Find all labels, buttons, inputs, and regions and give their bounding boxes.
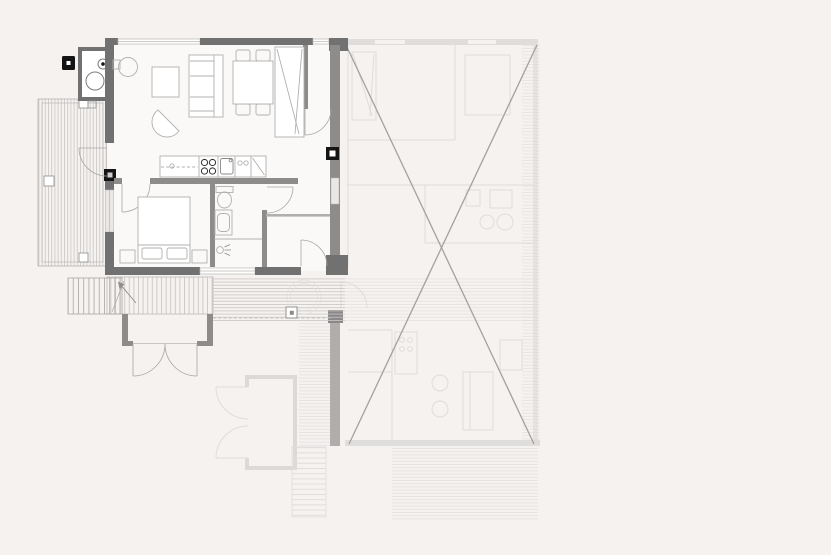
ghost-window bbox=[375, 40, 405, 44]
ghost-west-wall bbox=[330, 323, 340, 446]
column-post-icon bbox=[79, 253, 88, 262]
west-deck bbox=[38, 99, 107, 266]
kitchen-counter-icon bbox=[160, 156, 266, 177]
floor-plan-drawing bbox=[0, 0, 831, 555]
column-post-icon bbox=[44, 176, 54, 186]
south-walkway-hatch bbox=[213, 277, 345, 322]
corner-post bbox=[326, 255, 348, 275]
ghost-stairs-icon bbox=[292, 447, 326, 517]
chimney-flue bbox=[67, 61, 71, 65]
south-deck-boards-hatch bbox=[107, 277, 213, 314]
ghost-south-deck bbox=[392, 446, 538, 520]
main-unit bbox=[79, 38, 348, 275]
ghost-walkway-vertical bbox=[299, 322, 330, 447]
hall-divider-wall bbox=[266, 214, 330, 217]
ghost-walkway-hatch bbox=[345, 277, 535, 322]
ghost-east-wall bbox=[533, 45, 538, 443]
floor-plan-page bbox=[0, 0, 831, 555]
sofa-icon bbox=[189, 55, 223, 117]
coffee-table-icon bbox=[152, 67, 179, 97]
ghost-south-wall bbox=[345, 440, 540, 446]
ghost-window bbox=[468, 40, 496, 44]
double-bed-icon bbox=[138, 197, 190, 263]
washer-door-dot bbox=[101, 62, 105, 66]
wardrobe-icon bbox=[275, 47, 304, 137]
post-core bbox=[330, 151, 336, 157]
dining-table-icon bbox=[233, 61, 273, 104]
walkway-post bbox=[286, 307, 297, 318]
post-core bbox=[108, 173, 113, 178]
